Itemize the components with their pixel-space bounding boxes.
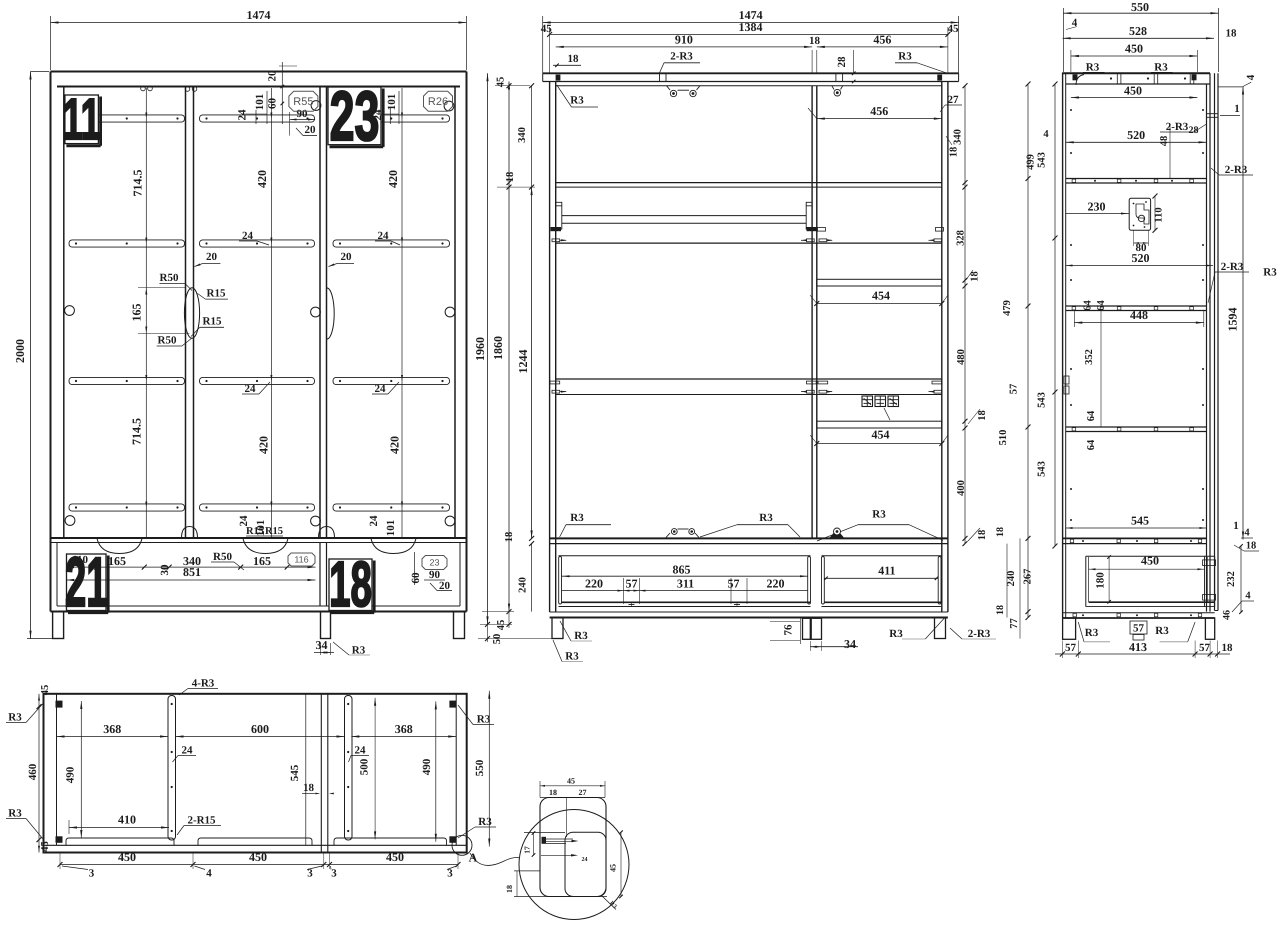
svg-text:64: 64 (1096, 300, 1107, 311)
svg-text:45: 45 (541, 23, 553, 35)
svg-text:520: 520 (1127, 128, 1145, 142)
svg-text:45: 45 (40, 685, 51, 696)
svg-text:240: 240 (518, 577, 529, 593)
svg-text:420: 420 (386, 170, 400, 188)
svg-text:18: 18 (949, 147, 960, 158)
svg-text:18: 18 (303, 782, 315, 794)
svg-text:45: 45 (948, 23, 960, 35)
svg-text:57: 57 (1065, 642, 1077, 654)
svg-text:11: 11 (63, 87, 101, 152)
svg-text:34: 34 (844, 637, 856, 651)
svg-text:2-R3: 2-R3 (1221, 261, 1244, 273)
svg-text:64: 64 (1086, 410, 1097, 421)
svg-text:480: 480 (956, 349, 967, 365)
svg-text:24: 24 (372, 109, 384, 121)
svg-text:46: 46 (1222, 610, 1233, 620)
svg-text:410: 410 (118, 813, 136, 827)
svg-text:R3: R3 (570, 95, 584, 107)
svg-text:18: 18 (1222, 642, 1234, 654)
svg-text:R3: R3 (872, 509, 886, 521)
svg-text:R3: R3 (1263, 267, 1277, 279)
svg-text:18: 18 (995, 527, 1006, 537)
svg-text:R3: R3 (478, 816, 492, 828)
svg-text:24: 24 (378, 230, 390, 242)
svg-text:600: 600 (251, 722, 269, 736)
svg-text:413: 413 (1129, 640, 1147, 654)
svg-text:220: 220 (767, 577, 785, 591)
svg-text:57: 57 (728, 577, 740, 591)
svg-text:550: 550 (474, 759, 486, 776)
svg-text:116: 116 (294, 555, 308, 565)
svg-text:714.5: 714.5 (131, 170, 145, 197)
svg-text:60: 60 (410, 572, 422, 584)
svg-text:450: 450 (386, 850, 404, 864)
svg-text:R3: R3 (889, 628, 903, 640)
svg-text:24: 24 (582, 857, 588, 863)
svg-text:460: 460 (27, 763, 39, 780)
svg-text:57: 57 (1133, 623, 1145, 635)
svg-text:30: 30 (159, 564, 171, 576)
svg-text:1384: 1384 (739, 20, 763, 34)
svg-text:R3: R3 (574, 630, 588, 642)
svg-text:R3: R3 (1154, 62, 1168, 74)
svg-text:456: 456 (873, 33, 891, 47)
svg-text:448: 448 (1130, 308, 1148, 322)
svg-text:1594: 1594 (1226, 308, 1240, 332)
svg-text:64: 64 (1083, 300, 1094, 311)
svg-text:18: 18 (505, 885, 514, 893)
svg-text:230: 230 (1088, 200, 1106, 214)
svg-text:910: 910 (675, 33, 693, 47)
svg-text:57: 57 (1009, 384, 1020, 395)
svg-text:714.5: 714.5 (130, 418, 144, 445)
svg-text:R3: R3 (1086, 62, 1100, 74)
svg-text:27: 27 (948, 94, 960, 106)
svg-text:24: 24 (182, 745, 194, 757)
svg-text:R3: R3 (898, 51, 912, 63)
svg-text:18: 18 (809, 35, 821, 47)
svg-text:2-R3: 2-R3 (670, 51, 693, 63)
svg-text:1: 1 (1234, 103, 1240, 115)
svg-text:90: 90 (297, 108, 309, 120)
svg-text:420: 420 (388, 436, 402, 454)
svg-text:510: 510 (998, 430, 1009, 446)
svg-text:543: 543 (1037, 392, 1048, 408)
svg-text:45: 45 (609, 864, 618, 872)
svg-text:545: 545 (1131, 514, 1149, 528)
svg-text:1: 1 (1233, 520, 1239, 532)
svg-text:77: 77 (1009, 618, 1020, 629)
svg-text:24: 24 (237, 109, 249, 121)
svg-text:R3: R3 (759, 512, 773, 524)
svg-text:28: 28 (1189, 125, 1199, 136)
svg-text:R50: R50 (158, 335, 177, 347)
svg-text:4: 4 (1245, 591, 1251, 602)
svg-text:27: 27 (579, 788, 587, 797)
svg-text:45: 45 (567, 777, 575, 786)
svg-text:454: 454 (872, 289, 890, 303)
svg-text:311: 311 (677, 577, 694, 591)
svg-text:450: 450 (118, 850, 136, 864)
svg-text:50: 50 (492, 634, 503, 645)
svg-text:2-R3: 2-R3 (968, 628, 991, 640)
svg-text:24: 24 (245, 383, 257, 395)
svg-text:R3: R3 (477, 714, 491, 726)
svg-text:500: 500 (359, 758, 371, 775)
svg-text:456: 456 (870, 104, 888, 118)
svg-text:368: 368 (395, 722, 413, 736)
svg-text:1244: 1244 (516, 350, 530, 374)
svg-text:420: 420 (257, 436, 271, 454)
svg-text:20: 20 (305, 124, 317, 136)
svg-text:499: 499 (1026, 154, 1037, 170)
svg-text:490: 490 (65, 766, 77, 783)
svg-text:220: 220 (585, 577, 603, 591)
svg-text:3: 3 (331, 868, 337, 880)
svg-text:2-R3: 2-R3 (1225, 164, 1248, 176)
svg-text:165: 165 (108, 554, 126, 568)
svg-text:18: 18 (549, 788, 557, 797)
svg-text:368: 368 (103, 722, 121, 736)
svg-text:2-R3: 2-R3 (1166, 121, 1189, 133)
svg-text:101: 101 (385, 520, 397, 537)
svg-text:18: 18 (977, 530, 988, 541)
svg-text:18: 18 (995, 605, 1006, 615)
svg-text:R3: R3 (8, 808, 22, 820)
svg-text:R3: R3 (1085, 627, 1099, 639)
svg-text:64: 64 (1086, 439, 1097, 450)
svg-text:57: 57 (626, 577, 638, 591)
svg-text:24: 24 (368, 515, 380, 527)
svg-text:411: 411 (878, 564, 895, 578)
svg-text:4-R3: 4-R3 (192, 678, 215, 690)
svg-text:23: 23 (429, 558, 439, 568)
svg-text:28: 28 (836, 56, 848, 68)
svg-text:340: 340 (953, 129, 964, 145)
svg-text:550: 550 (1131, 0, 1149, 14)
svg-text:454: 454 (872, 428, 890, 442)
svg-text:R55: R55 (293, 96, 313, 108)
svg-text:R50: R50 (213, 551, 232, 563)
svg-text:1474: 1474 (247, 8, 271, 22)
svg-text:543: 543 (1037, 152, 1048, 168)
svg-text:165: 165 (130, 304, 144, 322)
svg-text:R15: R15 (203, 316, 222, 328)
svg-text:18: 18 (1226, 28, 1238, 40)
svg-text:4: 4 (1245, 74, 1257, 80)
svg-text:165: 165 (253, 554, 271, 568)
svg-text:528: 528 (1129, 24, 1147, 38)
svg-text:20: 20 (267, 70, 279, 82)
svg-text:450: 450 (249, 850, 267, 864)
svg-text:48: 48 (1159, 136, 1170, 147)
svg-text:18: 18 (504, 532, 515, 543)
svg-text:400: 400 (956, 480, 967, 496)
svg-text:60: 60 (267, 98, 279, 110)
svg-text:20: 20 (206, 251, 218, 263)
svg-text:865: 865 (673, 563, 691, 577)
svg-text:45: 45 (496, 620, 507, 631)
svg-text:420: 420 (255, 170, 269, 188)
svg-text:450: 450 (1124, 84, 1142, 98)
svg-text:340: 340 (517, 127, 528, 143)
svg-text:3: 3 (89, 868, 95, 880)
svg-text:R15: R15 (246, 526, 264, 537)
svg-text:490: 490 (421, 758, 433, 775)
svg-text:110: 110 (72, 554, 88, 566)
svg-text:R3: R3 (1155, 625, 1169, 637)
svg-text:R3: R3 (565, 651, 579, 663)
svg-text:4: 4 (1244, 528, 1250, 539)
svg-text:20: 20 (341, 251, 353, 263)
svg-text:543: 543 (1037, 461, 1048, 477)
svg-text:352: 352 (1084, 349, 1095, 365)
svg-text:4: 4 (1043, 129, 1049, 140)
svg-text:101: 101 (254, 94, 266, 111)
svg-text:328: 328 (956, 230, 967, 246)
svg-text:R3: R3 (8, 712, 22, 724)
svg-text:2-R15: 2-R15 (187, 815, 216, 827)
svg-text:1960: 1960 (473, 337, 487, 361)
svg-text:45: 45 (40, 841, 51, 852)
svg-text:57: 57 (1199, 642, 1211, 654)
svg-text:R3: R3 (570, 512, 584, 524)
svg-text:479: 479 (1002, 300, 1013, 316)
svg-text:232: 232 (1226, 571, 1237, 587)
svg-text:450: 450 (1125, 42, 1143, 56)
svg-text:24: 24 (375, 383, 387, 395)
svg-text:2000: 2000 (13, 339, 27, 363)
svg-text:4: 4 (206, 868, 212, 880)
svg-text:24: 24 (355, 745, 367, 757)
svg-text:18: 18 (329, 548, 372, 620)
svg-text:520: 520 (1132, 251, 1150, 265)
svg-text:34: 34 (316, 638, 328, 652)
svg-text:17: 17 (523, 846, 532, 854)
svg-text:R50: R50 (160, 272, 179, 284)
svg-text:267: 267 (1023, 569, 1034, 585)
svg-text:24: 24 (238, 515, 250, 527)
svg-text:450: 450 (1141, 554, 1159, 568)
svg-text:24: 24 (242, 230, 254, 242)
svg-text:R15: R15 (265, 526, 283, 537)
svg-text:18: 18 (977, 410, 988, 421)
svg-text:545: 545 (289, 764, 301, 781)
svg-text:1860: 1860 (491, 336, 505, 360)
svg-text:240: 240 (1006, 571, 1017, 587)
svg-text:101: 101 (386, 94, 398, 111)
svg-text:18: 18 (1246, 541, 1257, 552)
svg-text:R26: R26 (428, 96, 448, 108)
svg-text:18: 18 (568, 53, 580, 65)
svg-text:76: 76 (783, 624, 795, 636)
svg-text:180: 180 (1095, 572, 1107, 589)
svg-text:R15: R15 (207, 288, 226, 300)
